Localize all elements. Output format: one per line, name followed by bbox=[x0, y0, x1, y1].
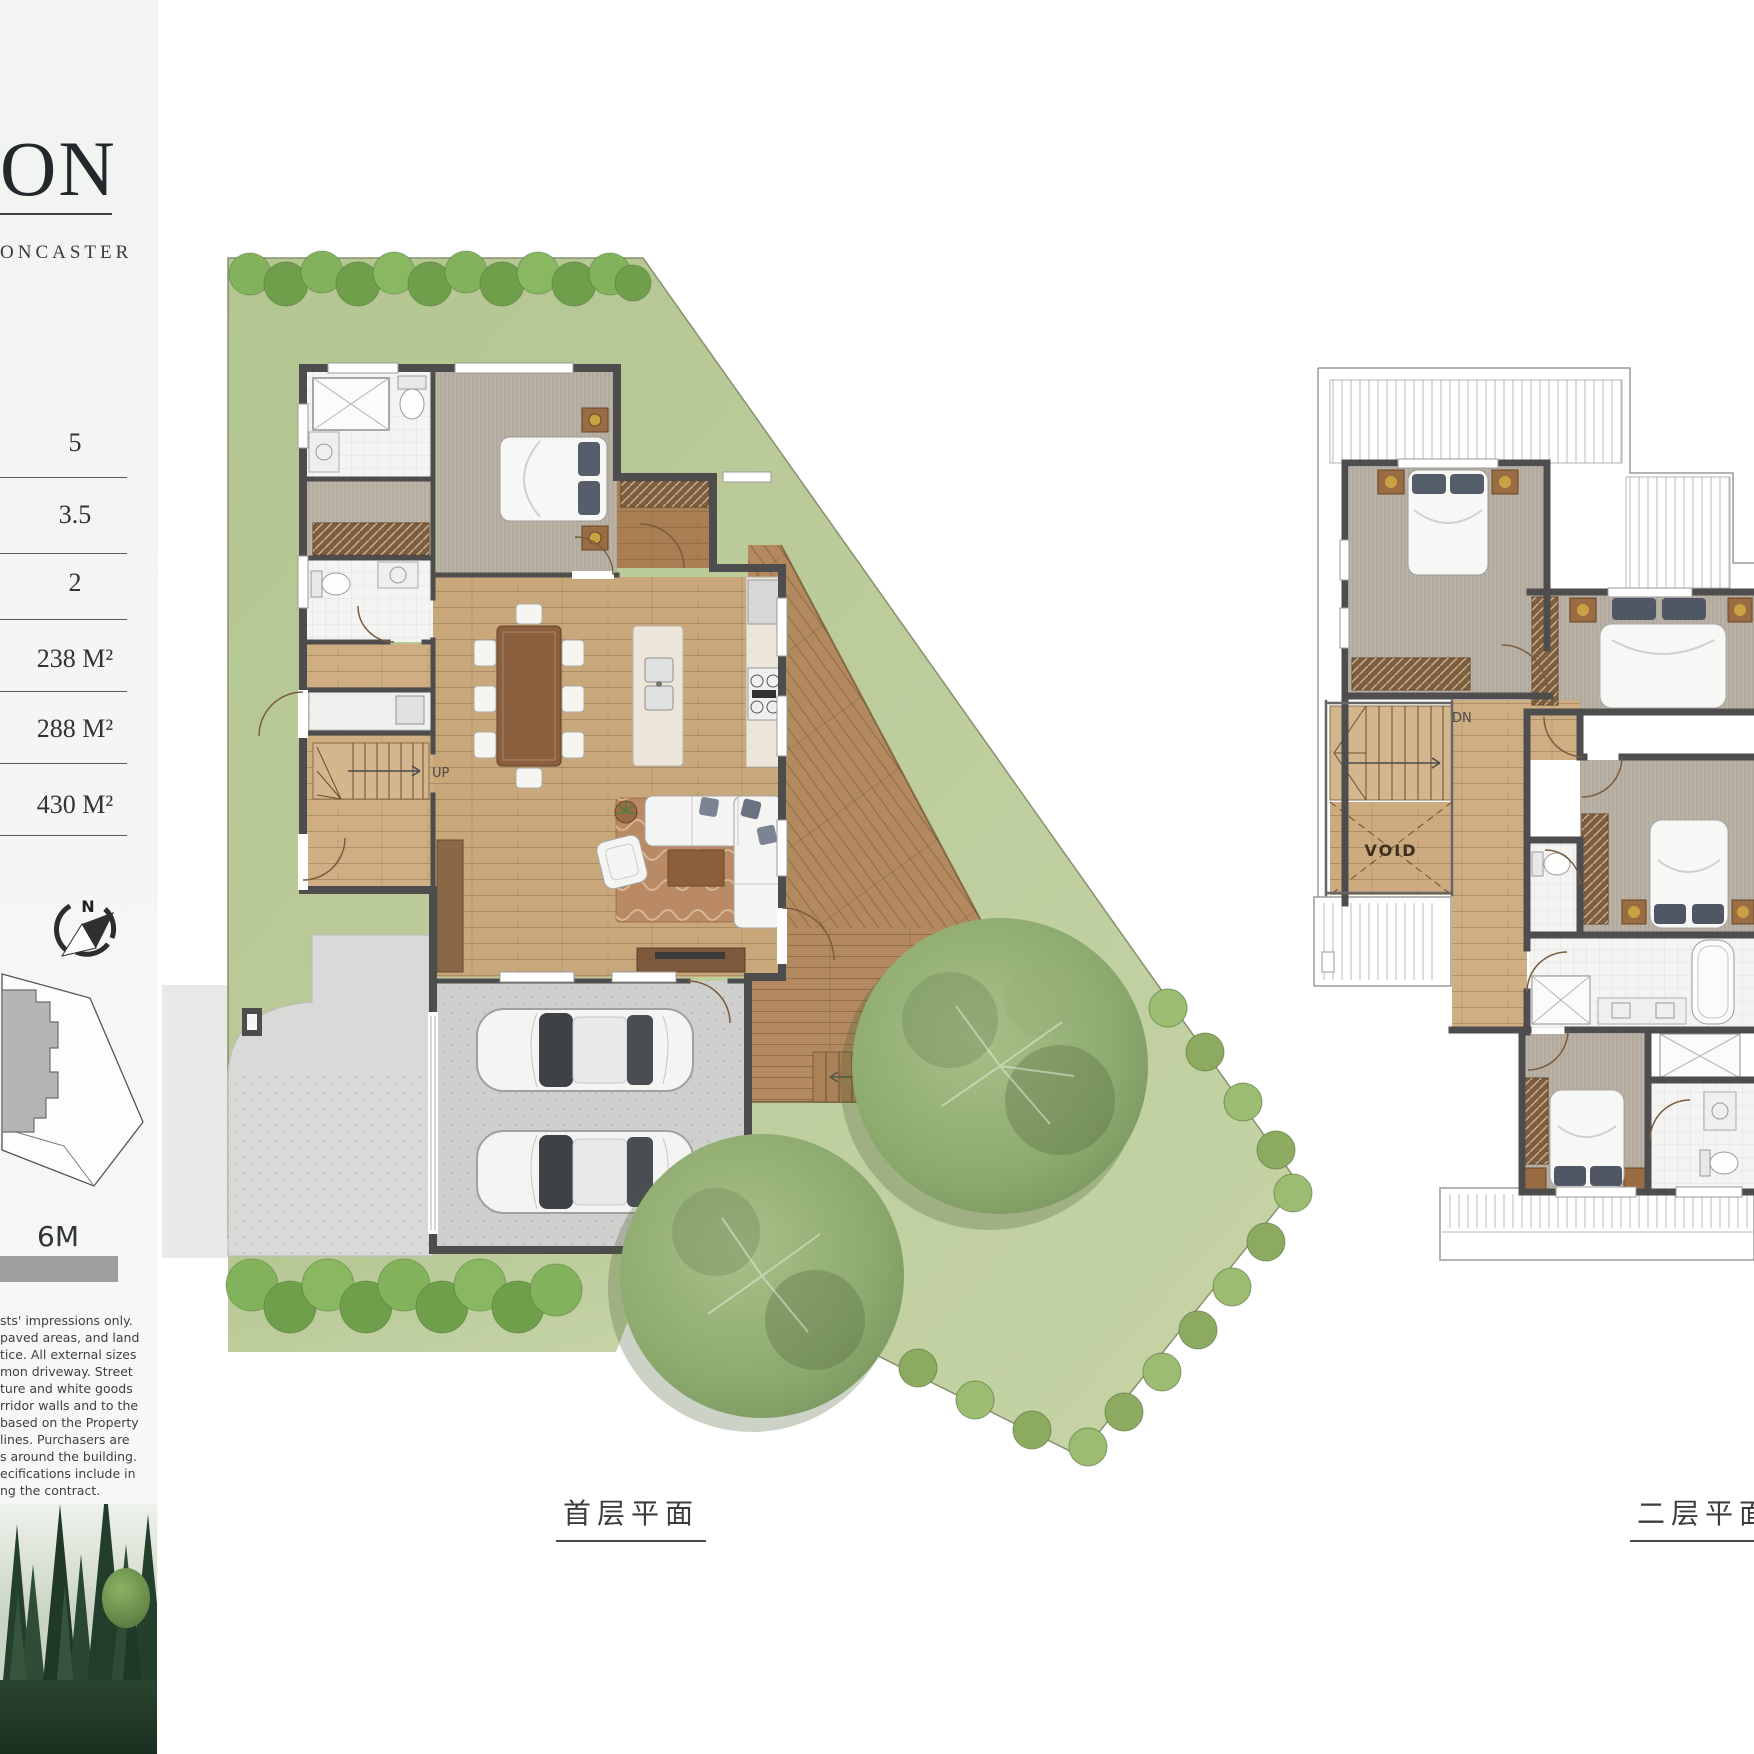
shower-bath bbox=[1532, 976, 1590, 1024]
coffee-table bbox=[668, 850, 724, 886]
disclaimer-line: rridor walls and to the bbox=[0, 1397, 141, 1414]
ensuite-toilet bbox=[1700, 1150, 1738, 1176]
forest-base bbox=[0, 1680, 157, 1754]
disclaimer-line: ng the contract. bbox=[0, 1482, 141, 1499]
spec-rule bbox=[0, 477, 127, 478]
sidebar: ON ONCASTER 5 3.5 2 238 M² 288 M² 430 M²… bbox=[0, 0, 158, 1754]
compass-icon: N bbox=[56, 897, 114, 956]
spec-area-2: 288 M² bbox=[0, 714, 150, 744]
vanity bbox=[309, 432, 339, 472]
disclaimer-line: lines. Purchasers are bbox=[0, 1431, 141, 1448]
plant-table bbox=[615, 801, 637, 823]
brand-subtitle: ONCASTER bbox=[0, 242, 130, 264]
stairs-ground: UP bbox=[313, 743, 450, 799]
fridge bbox=[748, 580, 780, 624]
spec-rule bbox=[0, 619, 127, 620]
stairs-dn-label: DN bbox=[1452, 711, 1472, 726]
upper-plan-caption: 二层平面 bbox=[1630, 1492, 1754, 1542]
ground-floor-plan: UP UP bbox=[158, 240, 1318, 1514]
shower-ensuite bbox=[1660, 1034, 1740, 1078]
upper-floor-plan: DN VOID bbox=[1305, 350, 1754, 1280]
spec-rule bbox=[0, 763, 127, 764]
spec-bedrooms: 5 bbox=[0, 428, 150, 458]
light-bush bbox=[102, 1568, 150, 1628]
site-location-diagram bbox=[2, 974, 143, 1186]
entry-cabinet bbox=[437, 840, 463, 972]
ensuite-vanity bbox=[1704, 1092, 1736, 1130]
void-label: VOID bbox=[1365, 841, 1418, 860]
spec-bathrooms: 3.5 bbox=[0, 500, 150, 530]
brand-title: ON bbox=[0, 130, 120, 208]
balcony-bottom bbox=[1448, 1194, 1754, 1228]
street-pavement bbox=[162, 985, 228, 1258]
spec-area-3: 430 M² bbox=[0, 790, 150, 820]
brand-title-rule bbox=[0, 213, 112, 215]
sidebar-graphics: N 6M bbox=[0, 880, 160, 1300]
forest-photo bbox=[0, 1504, 157, 1754]
svg-text:N: N bbox=[81, 897, 94, 916]
spec-rule bbox=[0, 835, 127, 836]
disclaimer-line: paved areas, and land bbox=[0, 1329, 141, 1346]
disclaimer-line: sts' impressions only. bbox=[0, 1312, 141, 1329]
tv-unit bbox=[637, 948, 745, 972]
scale-bar-rect bbox=[0, 1256, 118, 1282]
double-vanity bbox=[1598, 998, 1686, 1024]
ground-plan-caption: 首层平面 bbox=[556, 1492, 706, 1542]
svg-text:6M: 6M bbox=[37, 1220, 79, 1253]
disclaimer-text: sts' impressions only. paved areas, and … bbox=[0, 1312, 141, 1499]
spec-rule bbox=[0, 691, 127, 692]
stairs-upper: DN bbox=[1330, 706, 1472, 800]
vanity-2 bbox=[378, 562, 418, 588]
disclaimer-line: based on the Property bbox=[0, 1414, 141, 1431]
car-1 bbox=[477, 1009, 693, 1091]
toilet-2 bbox=[311, 571, 350, 597]
disclaimer-line: mon driveway. Street bbox=[0, 1363, 141, 1380]
brochure-page: { "sidebar": { "title_fragment": "ON", "… bbox=[0, 0, 1754, 1754]
balcony-left bbox=[1320, 903, 1438, 980]
scale-bar: 6M bbox=[0, 1220, 118, 1282]
shower bbox=[313, 378, 389, 430]
disclaimer-line: ture and white goods bbox=[0, 1380, 141, 1397]
disclaimer-line: ecifications include in bbox=[0, 1465, 141, 1482]
stairs-up-label: UP bbox=[432, 766, 450, 781]
stove bbox=[748, 668, 780, 720]
laundry-bench bbox=[309, 692, 431, 730]
bathtub bbox=[1692, 940, 1734, 1024]
disclaimer-line: s around the building. bbox=[0, 1448, 141, 1465]
toilet bbox=[398, 376, 426, 419]
disclaimer-line: tice. All external sizes bbox=[0, 1346, 141, 1363]
spec-cars: 2 bbox=[0, 568, 150, 598]
spec-rule bbox=[0, 553, 127, 554]
spec-area-1: 238 M² bbox=[0, 644, 150, 674]
kitchen-island bbox=[633, 626, 683, 766]
robe-hall-wardrobe bbox=[621, 481, 709, 507]
